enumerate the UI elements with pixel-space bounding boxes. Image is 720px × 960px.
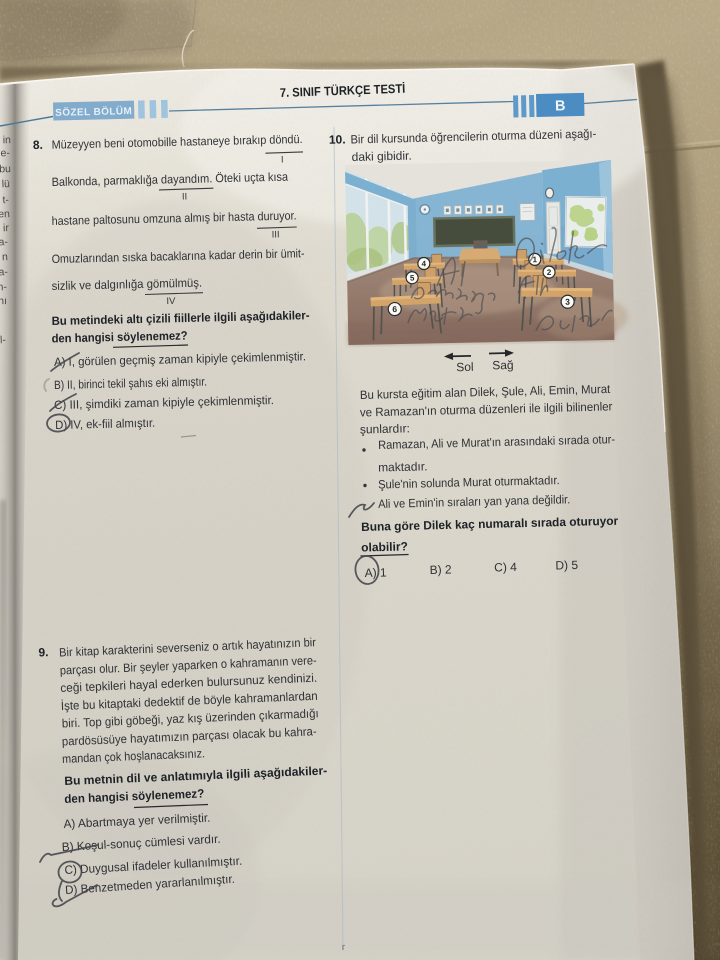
svg-text:bu: bu	[0, 163, 11, 175]
svg-text:olabilir?: olabilir?	[361, 539, 408, 554]
svg-text:B) 2: B) 2	[429, 562, 452, 577]
svg-text:3: 3	[565, 297, 570, 307]
svg-text:I: I	[281, 154, 284, 165]
svg-text:n-: n-	[0, 281, 8, 293]
svg-text:nı: nı	[0, 295, 7, 307]
svg-text:4: 4	[422, 259, 427, 268]
svg-text:e-: e-	[0, 147, 10, 159]
svg-text:C) 4: C) 4	[494, 560, 517, 575]
svg-text:in: in	[3, 134, 12, 146]
svg-text:Sol: Sol	[456, 360, 474, 374]
svg-text:şunlardır:: şunlardır:	[360, 421, 410, 436]
svg-text:2: 2	[547, 268, 552, 277]
svg-text:lü: lü	[2, 178, 11, 190]
svg-text:III: III	[272, 229, 280, 240]
svg-text:Sağ: Sağ	[492, 358, 514, 373]
svg-text:10.: 10.	[329, 132, 346, 146]
svg-text:D) 5: D) 5	[555, 558, 578, 573]
svg-text:II: II	[182, 191, 188, 202]
svg-text:9.: 9.	[38, 645, 49, 659]
svg-text:B: B	[555, 98, 566, 114]
svg-text:a-: a-	[0, 236, 9, 248]
svg-text:6: 6	[392, 304, 397, 314]
svg-text:t-: t-	[2, 194, 9, 206]
svg-text:l-: l-	[0, 334, 7, 346]
svg-text:A) 1: A) 1	[364, 565, 387, 580]
svg-text:8.: 8.	[33, 138, 43, 152]
svg-text:IV: IV	[166, 296, 176, 307]
svg-text:n: n	[2, 251, 8, 263]
svg-text:daki gibidir.: daki gibidir.	[352, 149, 412, 164]
svg-text:5: 5	[410, 273, 415, 282]
svg-text:en: en	[0, 208, 10, 220]
svg-text:a-: a-	[0, 266, 9, 278]
svg-text:maktadır.: maktadır.	[378, 459, 428, 474]
svg-text:ir: ir	[3, 222, 10, 234]
